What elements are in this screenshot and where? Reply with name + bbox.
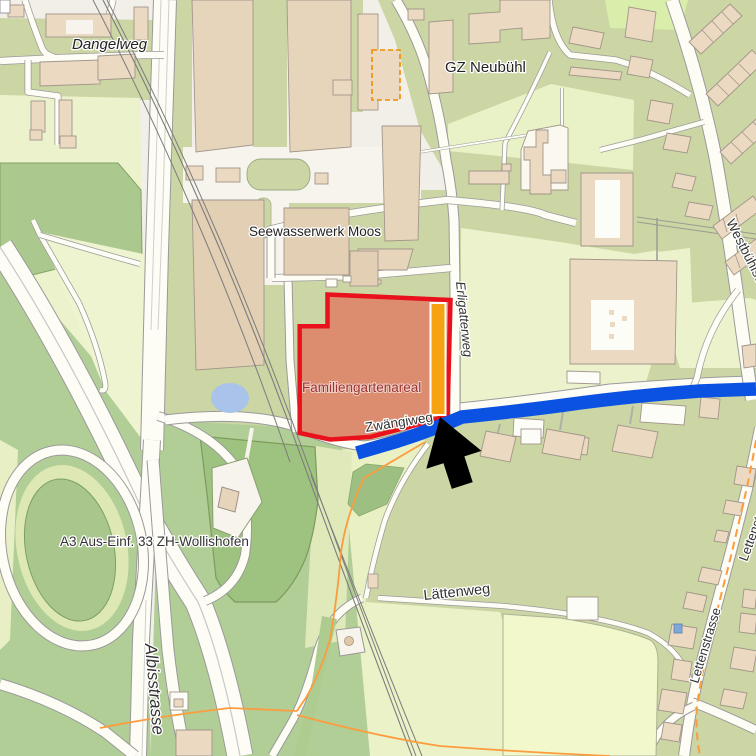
svg-text:Dangelweg: Dangelweg: [72, 36, 148, 53]
svg-text:Familiengartenareal: Familiengartenareal: [302, 380, 421, 395]
svg-text:Seewasserwerk Moos: Seewasserwerk Moos: [249, 224, 381, 239]
svg-text:GZ Neubühl: GZ Neubühl: [445, 59, 526, 76]
svg-text:A3 Aus-Einf. 33 ZH-Wollishofen: A3 Aus-Einf. 33 ZH-Wollishofen: [60, 534, 249, 549]
